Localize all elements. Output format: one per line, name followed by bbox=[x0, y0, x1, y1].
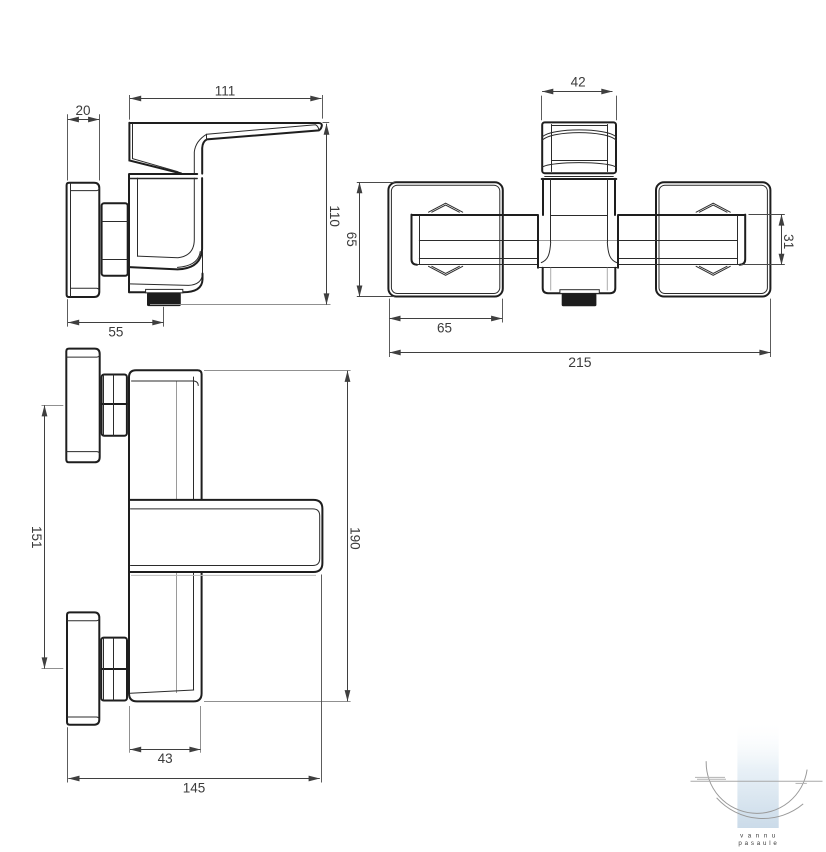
svg-text:42: 42 bbox=[571, 75, 586, 90]
svg-text:43: 43 bbox=[158, 751, 173, 766]
svg-text:111: 111 bbox=[215, 83, 236, 98]
svg-text:65: 65 bbox=[344, 232, 359, 247]
svg-text:65: 65 bbox=[437, 321, 452, 336]
svg-text:190: 190 bbox=[348, 527, 363, 550]
svg-text:145: 145 bbox=[183, 781, 206, 796]
svg-text:215: 215 bbox=[568, 354, 592, 370]
svg-text:151: 151 bbox=[29, 526, 44, 549]
svg-text:pasaule: pasaule bbox=[738, 840, 779, 847]
svg-text:55: 55 bbox=[108, 324, 123, 339]
svg-text:20: 20 bbox=[75, 103, 90, 118]
svg-text:vannu: vannu bbox=[740, 833, 780, 840]
svg-text:31: 31 bbox=[781, 234, 796, 249]
svg-text:110: 110 bbox=[327, 205, 342, 227]
